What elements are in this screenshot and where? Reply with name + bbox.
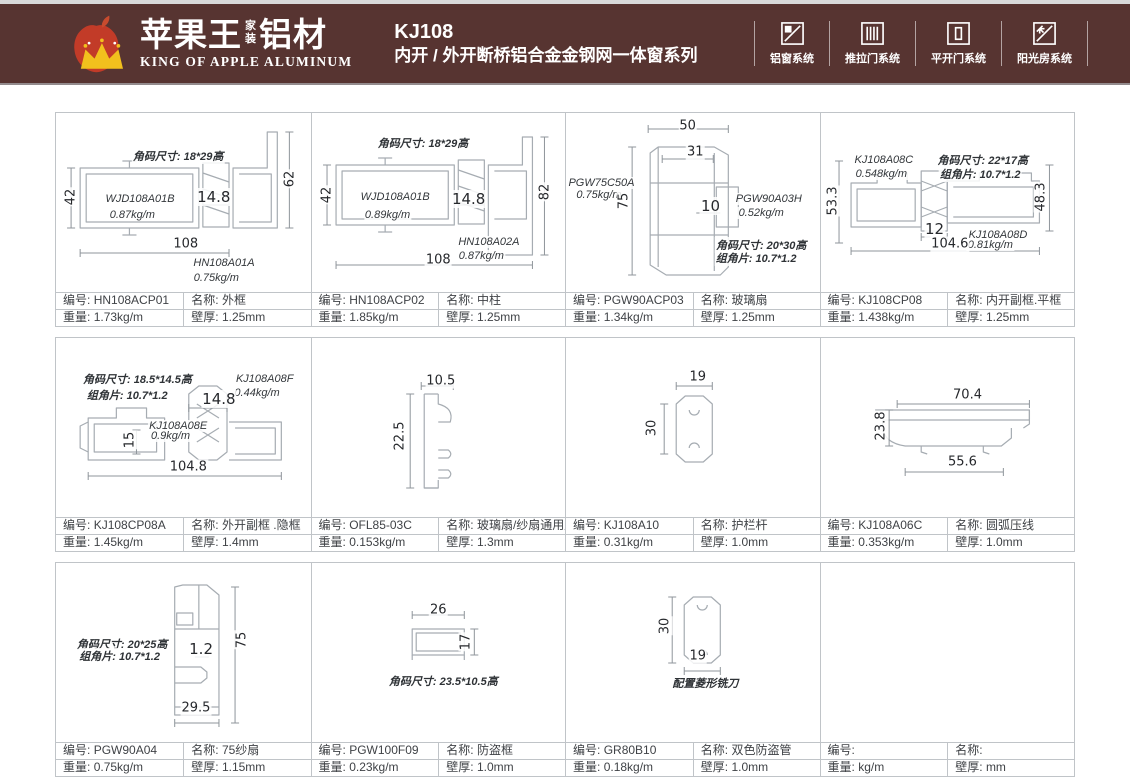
wall-thickness-value: 1.25mm	[477, 310, 520, 324]
system-item-label: 推拉门系统	[845, 50, 900, 66]
dimension-label: 19	[689, 649, 708, 664]
weight-label: 重量:	[828, 310, 855, 324]
drawing-note: 角码尺寸: 23.5*10.5高	[388, 673, 499, 689]
dimension-label: 104.8	[169, 459, 208, 474]
system-item-label: 铝窗系统	[770, 50, 814, 66]
dimension-label: 62	[283, 170, 298, 189]
part-label: 0.75kg/m	[193, 272, 240, 284]
profile-drawing	[821, 563, 1075, 742]
drawing-note: 组角片: 10.7*1.2	[939, 166, 1022, 182]
dimension-label: 31	[686, 145, 705, 160]
weight-value: 1.85kg/m	[349, 310, 398, 324]
part-number-value: PGW90ACP03	[604, 293, 684, 307]
part-name-value: 中柱	[477, 293, 501, 307]
dimension-label: 75	[234, 631, 249, 650]
part-name-value: 防盗框	[477, 743, 513, 757]
drawing-note: 组角片: 10.7*1.2	[715, 250, 798, 266]
part-name-label: 名称:	[191, 743, 218, 757]
part-label: PGW90A03H	[735, 193, 803, 205]
system-item-label: 阳光房系统	[1017, 50, 1072, 66]
part-label: 0.87kg/m	[458, 250, 505, 262]
spec-table: 编号: KJ108A10名称: 护栏杆重量: 0.31kg/m壁厚: 1.0mm	[566, 517, 820, 551]
part-name-label: 名称:	[701, 293, 728, 307]
weight-label: 重量:	[573, 535, 600, 549]
dimension-label: 30	[645, 418, 660, 437]
spec-table: 编号: GR80B10名称: 双色防盗管重量: 0.18kg/m壁厚: 1.0m…	[566, 742, 820, 776]
wall-thickness-label: 壁厚:	[701, 310, 728, 324]
product-row: 角码尺寸: 18.5*14.5高组角片: 10.7*1.2KJ108A08F0.…	[55, 337, 1075, 552]
part-label: 0.548kg/m	[855, 168, 908, 180]
part-name-value: 外开副框 .隐框	[222, 518, 301, 532]
sliding-door-system-icon	[860, 21, 885, 46]
profile-drawing: 1930	[566, 338, 820, 517]
system-nav: 铝窗系统 推拉门系统 平开门系统 阳光房系统	[754, 21, 1088, 66]
part-label: 0.44kg/m	[233, 387, 280, 399]
wall-thickness-value: 1.25mm	[731, 310, 774, 324]
wall-thickness-label: 壁厚:	[191, 310, 218, 324]
profile-drawing: 2617角码尺寸: 23.5*10.5高	[312, 563, 566, 742]
part-number-value: KJ108A10	[604, 518, 659, 532]
part-number-value: GR80B10	[604, 743, 657, 757]
dimension-label: 50	[678, 118, 697, 133]
product-cell: 2617角码尺寸: 23.5*10.5高编号: PGW100F09名称: 防盗框…	[311, 563, 566, 776]
product-cell: 5031PGW75C50A0.75kg/m7510PGW90A03H0.52kg…	[565, 113, 820, 326]
part-number-label: 编号:	[573, 743, 600, 757]
part-number-label: 编号:	[63, 293, 90, 307]
dimension-label: 15	[122, 431, 137, 450]
product-row: 角码尺寸: 18*29高42WJD108A01B0.87kg/m14.86210…	[55, 112, 1075, 327]
wall-thickness-label: 壁厚:	[701, 535, 728, 549]
product-cell: 角码尺寸: 18.5*14.5高组角片: 10.7*1.2KJ108A08F0.…	[56, 338, 311, 551]
part-name-value: 玻璃扇	[731, 293, 767, 307]
spec-table: 编号: KJ108CP08A名称: 外开副框 .隐框重量: 1.45kg/m壁厚…	[56, 517, 311, 551]
wall-thickness-label: 壁厚:	[191, 535, 218, 549]
part-number-label: 编号:	[573, 518, 600, 532]
spec-table: 编号: PGW100F09名称: 防盗框重量: 0.23kg/m壁厚: 1.0m…	[312, 742, 566, 776]
part-name-label: 名称:	[701, 743, 728, 757]
dimension-label: 42	[319, 186, 334, 205]
dimension-label: 26	[429, 602, 448, 617]
part-name-value: 圆弧压线	[986, 518, 1034, 532]
spec-table: 编号: PGW90ACP03名称: 玻璃扇重量: 1.34kg/m壁厚: 1.2…	[566, 292, 820, 326]
wall-thickness-value: 1.3mm	[477, 535, 514, 549]
wall-thickness-value: 1.15mm	[222, 760, 265, 774]
profile-drawing: 10.522.5	[312, 338, 566, 517]
dimension-label: 14.8	[201, 390, 236, 408]
part-number-value: KJ108CP08	[858, 293, 922, 307]
part-name-label: 名称:	[446, 293, 473, 307]
part-number-value: PGW90A04	[94, 743, 157, 757]
dimension-label: 10	[700, 197, 721, 215]
drawing-note: 角码尺寸: 18.5*14.5高	[82, 371, 193, 387]
wall-thickness-value: 1.25mm	[222, 310, 265, 324]
part-number-label: 编号:	[319, 293, 346, 307]
profile-drawing: 角码尺寸: 18*29高42WJD108A01B0.87kg/m14.86210…	[56, 113, 311, 292]
part-name-value: 玻璃扇/纱扇通用压线	[477, 518, 565, 532]
weight-value: 1.438kg/m	[858, 310, 914, 324]
profile-drawing: KJ108A08C0.548kg/m角码尺寸: 22*17高组角片: 10.7*…	[821, 113, 1075, 292]
wall-thickness-label: 壁厚:	[701, 760, 728, 774]
product-cell: 角码尺寸: 20*25高组角片: 10.7*1.21.27529.5编号: PG…	[56, 563, 311, 776]
drawing-note: 角码尺寸: 18*29高	[132, 148, 224, 164]
profile-drawing: 角码尺寸: 18.5*14.5高组角片: 10.7*1.2KJ108A08F0.…	[56, 338, 311, 517]
part-name-value: 外框	[222, 293, 246, 307]
part-number-label: 编号:	[828, 743, 855, 757]
dimension-label: 1.2	[188, 640, 214, 658]
weight-value: 1.34kg/m	[604, 310, 653, 324]
part-number-label: 编号:	[63, 518, 90, 532]
part-name-value: 75纱扇	[222, 743, 259, 757]
spec-table: 编号: KJ108A06C名称: 圆弧压线重量: 0.353kg/m壁厚: 1.…	[821, 517, 1075, 551]
dimension-label: 42	[64, 188, 79, 207]
profile-drawing: 5031PGW75C50A0.75kg/m7510PGW90A03H0.52kg…	[566, 113, 820, 292]
wall-thickness-value: 1.0mm	[731, 760, 768, 774]
part-name-label: 名称:	[701, 518, 728, 532]
wall-thickness-value: 1.0mm	[986, 535, 1023, 549]
part-name-value: 内开副框.平框	[986, 293, 1061, 307]
spec-table: 编号: HN108ACP01名称: 外框重量: 1.73kg/m壁厚: 1.25…	[56, 292, 311, 326]
weight-label: 重量:	[828, 760, 855, 774]
profile-drawing: 70.423.855.6	[821, 338, 1075, 517]
part-number-label: 编号:	[573, 293, 600, 307]
profile-drawing: 3019配置菱形铣刀	[566, 563, 820, 742]
system-item-label: 平开门系统	[931, 50, 986, 66]
dimension-label: 70.4	[952, 388, 983, 403]
wall-thickness-label: 壁厚:	[955, 760, 982, 774]
system-item-casement-door[interactable]: 平开门系统	[915, 21, 1001, 66]
brand-logo: 苹果王 家 装 铝材 KING OF APPLE ALUMINUM	[68, 13, 352, 75]
part-number-label: 编号:	[828, 518, 855, 532]
part-label: 0.89kg/m	[364, 209, 411, 221]
part-label: KJ108A08F	[235, 373, 294, 385]
part-number-label: 编号:	[63, 743, 90, 757]
part-label: 0.87kg/m	[109, 209, 156, 221]
dimension-label: 75	[617, 191, 632, 210]
product-cell: 1930编号: KJ108A10名称: 护栏杆重量: 0.31kg/m壁厚: 1…	[565, 338, 820, 551]
weight-label: 重量:	[828, 535, 855, 549]
dimension-label: 82	[537, 182, 552, 201]
weight-label: 重量:	[319, 310, 346, 324]
sunroom-system-icon	[1032, 21, 1057, 46]
brand-name: 苹果王 家 装 铝材 KING OF APPLE ALUMINUM	[140, 18, 352, 70]
system-item-sunroom[interactable]: 阳光房系统	[1001, 21, 1088, 66]
brand-cn-stack: 家 装	[245, 20, 256, 46]
weight-value: 0.18kg/m	[604, 760, 653, 774]
drawing-note: 组角片: 10.7*1.2	[86, 387, 169, 403]
brand-cn-main: 苹果王	[140, 18, 242, 51]
dimension-label: 14.8	[451, 190, 486, 208]
weight-label: 重量:	[63, 760, 90, 774]
system-item-sliding-door[interactable]: 推拉门系统	[829, 21, 915, 66]
window-system-icon	[780, 21, 805, 46]
dimension-label: 53.3	[826, 185, 841, 216]
part-label: PGW75C50A	[567, 177, 635, 189]
wall-thickness-label: 壁厚:	[446, 760, 473, 774]
wall-thickness-value: 1.0mm	[477, 760, 514, 774]
product-cell: 角码尺寸: 18*29高42WJD108A01B0.89kg/m14.882HN…	[311, 113, 566, 326]
wall-thickness-label: 壁厚:	[191, 760, 218, 774]
spec-table: 编号: PGW90A04名称: 75纱扇重量: 0.75kg/m壁厚: 1.15…	[56, 742, 311, 776]
dimension-label: 14.8	[196, 188, 231, 206]
product-cell: 角码尺寸: 18*29高42WJD108A01B0.87kg/m14.86210…	[56, 113, 311, 326]
dimension-label: 30	[657, 616, 672, 635]
weight-value: 1.73kg/m	[94, 310, 143, 324]
weight-value: 0.153kg/m	[349, 535, 405, 549]
dimension-label: 108	[172, 236, 199, 251]
part-number-value: HN108ACP02	[349, 293, 424, 307]
weight-label: 重量:	[63, 535, 90, 549]
page-title-series: 内开 / 外开断桥铝合金金钢网一体窗系列	[394, 45, 697, 66]
spec-table: 编号: OFL85-03C名称: 玻璃扇/纱扇通用压线重量: 0.153kg/m…	[312, 517, 566, 551]
weight-value: 0.353kg/m	[858, 535, 914, 549]
weight-label: 重量:	[573, 760, 600, 774]
product-cell: KJ108A08C0.548kg/m角码尺寸: 22*17高组角片: 10.7*…	[820, 113, 1075, 326]
weight-value: 0.31kg/m	[604, 535, 653, 549]
page-title-model: KJ108	[394, 20, 697, 45]
part-label: 0.52kg/m	[738, 207, 785, 219]
dimension-label: 48.3	[1034, 182, 1049, 213]
dimension-label: 108	[425, 252, 452, 267]
part-label: WJD108A01B	[104, 193, 175, 205]
part-number-value: HN108ACP01	[94, 293, 169, 307]
weight-value: 0.23kg/m	[349, 760, 398, 774]
product-cell: 编号: 名称: 重量: kg/m壁厚: mm	[820, 563, 1075, 776]
dimension-label: 23.8	[874, 410, 889, 441]
part-label: 0.81kg/m	[967, 239, 1014, 251]
part-number-value: KJ108CP08A	[94, 518, 166, 532]
dimension-label: 19	[689, 370, 708, 385]
part-label: 0.9kg/m	[150, 430, 191, 442]
weight-label: 重量:	[573, 310, 600, 324]
weight-value: kg/m	[858, 760, 884, 774]
part-name-value: 护栏杆	[731, 518, 767, 532]
drawing-note: 组角片: 10.7*1.2	[78, 648, 161, 664]
part-label: HN108A01A	[192, 257, 255, 269]
product-cell: 3019配置菱形铣刀编号: GR80B10名称: 双色防盗管重量: 0.18kg…	[565, 563, 820, 776]
part-number-value: KJ108A06C	[858, 518, 922, 532]
profile-drawing: 角码尺寸: 18*29高42WJD108A01B0.89kg/m14.882HN…	[312, 113, 566, 292]
part-name-label: 名称:	[446, 518, 473, 532]
part-label: HN108A02A	[457, 236, 520, 248]
dimension-label: 104.6	[930, 236, 969, 251]
spec-table: 编号: 名称: 重量: kg/m壁厚: mm	[821, 742, 1075, 776]
part-label: KJ108A08C	[854, 154, 915, 166]
weight-value: 1.45kg/m	[94, 535, 143, 549]
system-item-window[interactable]: 铝窗系统	[754, 21, 829, 66]
product-grid: 角码尺寸: 18*29高42WJD108A01B0.87kg/m14.86210…	[55, 112, 1075, 777]
page-header: 苹果王 家 装 铝材 KING OF APPLE ALUMINUM KJ108 …	[0, 4, 1130, 85]
brand-cn-suffix: 铝材	[259, 18, 327, 51]
drawing-note: 配置菱形铣刀	[671, 675, 739, 691]
dimension-label: 55.6	[947, 454, 978, 469]
part-label: WJD108A01B	[360, 191, 431, 203]
dimension-label: 22.5	[393, 421, 408, 452]
wall-thickness-label: 壁厚:	[955, 535, 982, 549]
spec-table: 编号: HN108ACP02名称: 中柱重量: 1.85kg/m壁厚: 1.25…	[312, 292, 566, 326]
part-number-label: 编号:	[828, 293, 855, 307]
page-title: KJ108 内开 / 外开断桥铝合金金钢网一体窗系列	[394, 20, 697, 66]
part-number-value: OFL85-03C	[349, 518, 412, 532]
dimension-label: 29.5	[180, 700, 211, 715]
part-name-label: 名称:	[191, 518, 218, 532]
part-number-label: 编号:	[319, 518, 346, 532]
weight-value: 0.75kg/m	[94, 760, 143, 774]
wall-thickness-label: 壁厚:	[446, 535, 473, 549]
wall-thickness-label: 壁厚:	[446, 310, 473, 324]
part-name-value: 双色防盗管	[731, 743, 791, 757]
spec-table: 编号: KJ108CP08名称: 内开副框.平框重量: 1.438kg/m壁厚:…	[821, 292, 1075, 326]
apple-crown-logo-icon	[68, 13, 134, 75]
part-name-label: 名称:	[191, 293, 218, 307]
wall-thickness-value: 1.0mm	[731, 535, 768, 549]
wall-thickness-label: 壁厚:	[955, 310, 982, 324]
dimension-label: 17	[459, 632, 474, 651]
dimension-label: 10.5	[425, 373, 456, 388]
drawing-note: 角码尺寸: 18*29高	[377, 135, 469, 151]
part-name-label: 名称:	[955, 743, 982, 757]
casement-door-system-icon	[946, 21, 971, 46]
part-number-label: 编号:	[319, 743, 346, 757]
wall-thickness-value: 1.4mm	[222, 535, 259, 549]
wall-thickness-value: 1.25mm	[986, 310, 1029, 324]
weight-label: 重量:	[319, 535, 346, 549]
weight-label: 重量:	[319, 760, 346, 774]
wall-thickness-value: mm	[986, 760, 1006, 774]
brand-tagline-en: KING OF APPLE ALUMINUM	[140, 54, 352, 70]
profile-drawing: 角码尺寸: 20*25高组角片: 10.7*1.21.27529.5	[56, 563, 311, 742]
product-cell: 10.522.5编号: OFL85-03C名称: 玻璃扇/纱扇通用压线重量: 0…	[311, 338, 566, 551]
product-row: 角码尺寸: 20*25高组角片: 10.7*1.21.27529.5编号: PG…	[55, 562, 1075, 777]
part-number-value: PGW100F09	[349, 743, 418, 757]
part-name-label: 名称:	[955, 293, 982, 307]
weight-label: 重量:	[63, 310, 90, 324]
part-name-label: 名称:	[955, 518, 982, 532]
product-cell: 70.423.855.6编号: KJ108A06C名称: 圆弧压线重量: 0.3…	[820, 338, 1075, 551]
part-name-label: 名称:	[446, 743, 473, 757]
part-label: 0.75kg/m	[575, 189, 622, 201]
